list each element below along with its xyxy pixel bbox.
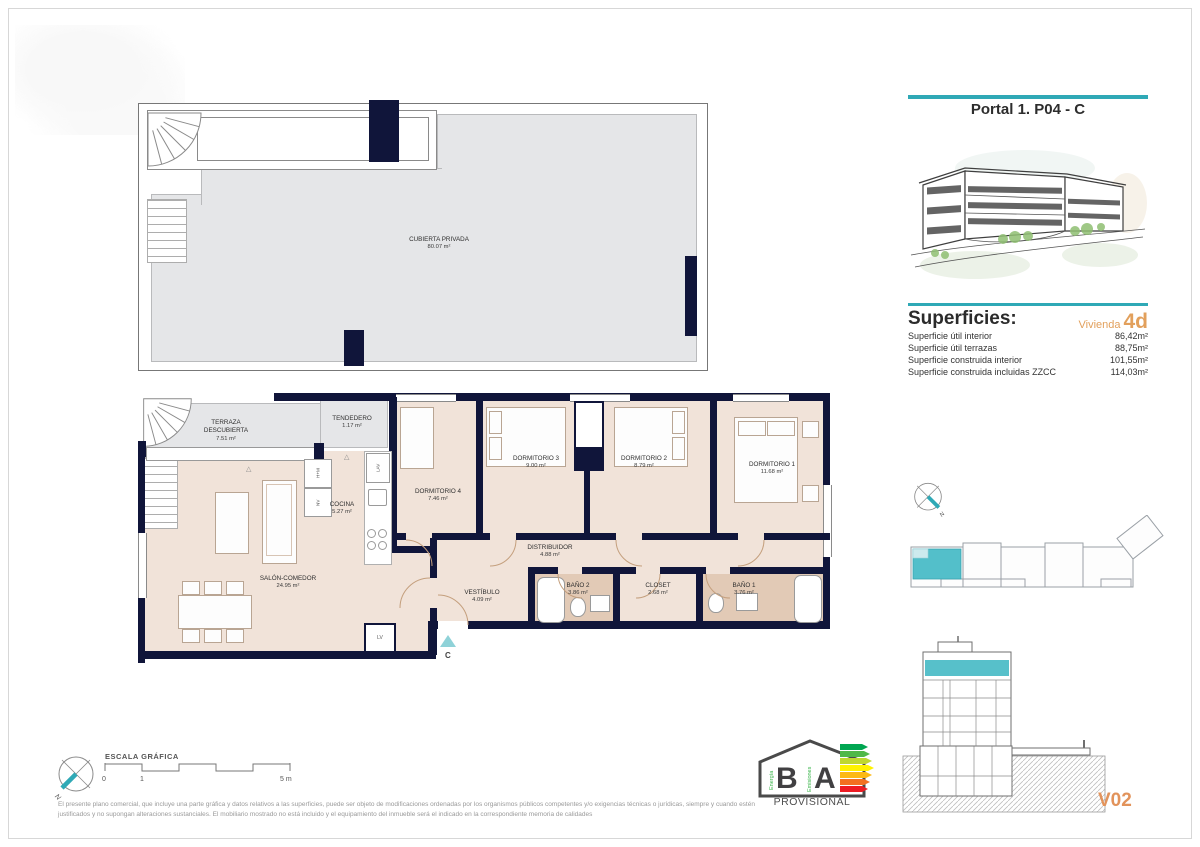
room-name: DORMITORIO 1	[749, 461, 795, 468]
roof-name: CUBIERTA PRIVADA	[409, 236, 469, 243]
superficie-label: Superficie construida incluidas ZZCC	[908, 366, 1056, 378]
superficies-panel: Superficies: Vivienda4d Superficie útil …	[908, 308, 1148, 378]
room-label-closet: CLOSET 2.68 m²	[645, 574, 670, 598]
energy-vertical-label: Emisiones	[807, 766, 813, 792]
vivienda-label: Vivienda	[1078, 319, 1120, 331]
room-area: 24.95 m²	[260, 583, 316, 591]
site-key-plan	[905, 515, 1180, 600]
room-label-cocina: COCINA 5.27 m²	[330, 493, 355, 517]
scale-tick: 1	[140, 776, 144, 783]
room-area: 5.27 m²	[330, 509, 355, 517]
superficie-label: Superficie útil interior	[908, 330, 992, 342]
room-name: DORMITORIO 2	[621, 455, 667, 462]
roof-area: 80.07 m²	[409, 244, 469, 252]
roof-terrace-area	[437, 114, 697, 205]
roof-wall	[685, 256, 697, 336]
room-label-dormitorio2: DORMITORIO 2 8.79 m²	[621, 447, 667, 471]
room-label-terraza: TERRAZA DESCUBIERTA 7.51 m²	[204, 411, 248, 443]
room-area: 3.86 m²	[566, 590, 589, 598]
roof-terrace-area	[201, 168, 442, 205]
superficie-value: 88,75m²	[1115, 342, 1148, 354]
room-area: 1.17 m²	[332, 423, 372, 431]
header-rule-top	[908, 95, 1148, 99]
room-area: 7.46 m²	[415, 496, 461, 504]
provisional-caption: PROVISIONAL	[752, 796, 872, 808]
room-name: TENDEDERO	[332, 415, 372, 422]
roof-wall	[369, 100, 399, 162]
highlighted-floor	[925, 660, 1009, 676]
room-name: DORMITORIO 4	[415, 488, 461, 495]
room-name: BAÑO 2	[566, 582, 589, 589]
energy-vertical-label: Energía	[769, 770, 775, 790]
room-name: DORMITORIO 3	[513, 455, 559, 462]
superficies-title: Superficies:	[908, 308, 1017, 329]
room-area: 8.79 m²	[621, 463, 667, 471]
room-name: TERRAZA DESCUBIERTA	[204, 419, 248, 434]
portal-title: Portal 1. P04 - C	[908, 101, 1148, 118]
room-label-dormitorio4: DORMITORIO 4 7.46 m²	[415, 480, 461, 504]
room-name: VESTÍBULO	[464, 589, 499, 596]
room-area: 11.68 m²	[749, 469, 795, 477]
room-label-distribuidor: DISTRIBUIDOR 4.88 m²	[527, 536, 572, 560]
scale-tick: 0	[102, 776, 106, 783]
superficie-value: 101,55m²	[1110, 354, 1148, 366]
scale-tick: 5 m	[280, 776, 292, 783]
version-label: V02	[1098, 790, 1132, 812]
room-label-tendedero: TENDEDERO 1.17 m²	[332, 407, 372, 431]
building-section	[898, 636, 1118, 818]
roof-ladder	[147, 199, 187, 263]
apartment-plan: △ △ H+M NV LAV LV	[138, 393, 830, 683]
building-illustration	[905, 133, 1151, 291]
energy-letter-b: B	[776, 762, 798, 795]
room-label-salon: SALÓN-COMEDOR 24.95 m²	[260, 567, 316, 591]
room-name: DISTRIBUIDOR	[527, 544, 572, 551]
room-label-bano2: BAÑO 2 3.86 m²	[566, 574, 589, 598]
energy-letter-a: A	[814, 762, 836, 795]
energy-rating-logo: B A Energía Emisiones	[752, 736, 874, 798]
room-area: 9.00 m²	[513, 463, 559, 471]
room-name: SALÓN-COMEDOR	[260, 575, 316, 582]
room-area: 4.09 m²	[464, 597, 499, 605]
energy-arrows	[840, 744, 874, 792]
superficies-row: Superficie construida interior 101,55m²	[908, 354, 1148, 366]
disclaimer-text: El presente plano comercial, que incluye…	[58, 800, 758, 820]
compass-icon: N	[52, 752, 100, 804]
plan-sheet: CUBIERTA PRIVADA 80.07 m²	[0, 0, 1200, 847]
roof-label: CUBIERTA PRIVADA 80.07 m²	[409, 228, 469, 260]
superficie-label: Superficie construida interior	[908, 354, 1022, 366]
spiral-stair-icon	[143, 108, 203, 198]
scale-title: ESCALA GRÁFICA	[105, 752, 179, 761]
roof-terrace-area	[151, 194, 697, 362]
superficie-label: Superficie útil terrazas	[908, 342, 997, 354]
room-label-bano1: BAÑO 1 3.76 m²	[732, 574, 755, 598]
room-area: 7.51 m²	[204, 435, 248, 443]
room-label-dormitorio1: DORMITORIO 1 11.68 m²	[749, 453, 795, 477]
roof-plan: CUBIERTA PRIVADA 80.07 m²	[138, 103, 708, 371]
header-rule-bottom	[908, 303, 1148, 306]
superficies-row: Superficie construida incluidas ZZCC 114…	[908, 366, 1148, 378]
superficies-row: Superficie útil terrazas 88,75m²	[908, 342, 1148, 354]
room-label-dormitorio3: DORMITORIO 3 9.00 m²	[513, 447, 559, 471]
room-name: COCINA	[330, 501, 355, 508]
vivienda-code: 4d	[1123, 310, 1148, 333]
roof-wall	[344, 330, 364, 366]
superficie-value: 114,03m²	[1111, 366, 1148, 378]
scale-bar: ESCALA GRÁFICA 0 1 5 m	[100, 750, 310, 784]
room-label-vestibulo: VESTÍBULO 4.09 m²	[464, 581, 499, 605]
vivienda-badge: Vivienda4d	[1078, 310, 1148, 334]
room-area: 3.76 m²	[732, 590, 755, 598]
room-area: 4.88 m²	[527, 552, 572, 560]
room-name: BAÑO 1	[732, 582, 755, 589]
room-area: 2.68 m²	[645, 590, 670, 598]
room-name: CLOSET	[645, 582, 670, 589]
